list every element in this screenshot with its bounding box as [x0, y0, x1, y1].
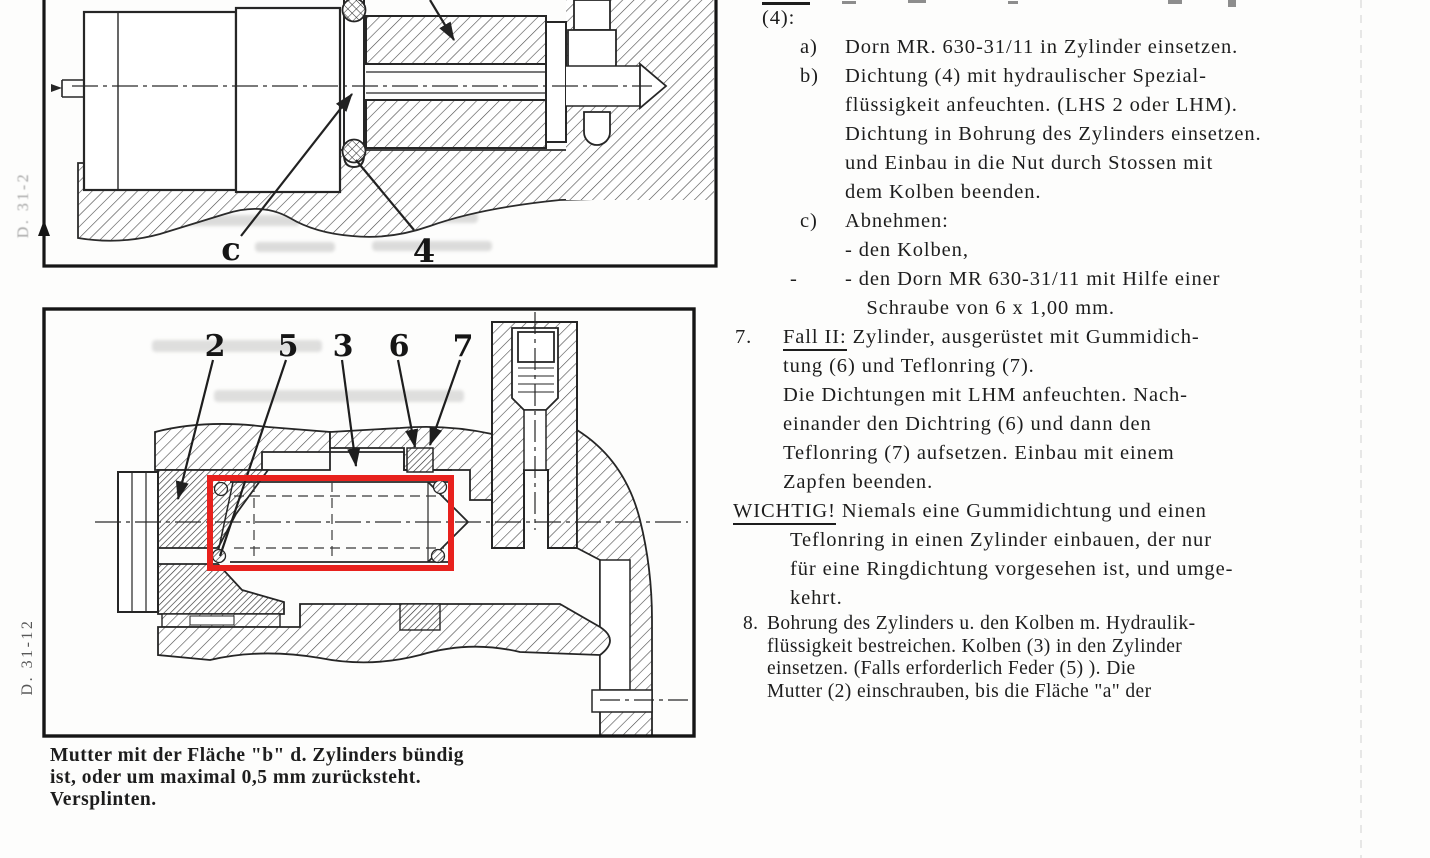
list-marker: - — [790, 265, 798, 294]
seal-ring-section — [407, 448, 433, 472]
callout-5: 5 — [278, 329, 299, 364]
list-marker: 7. — [735, 323, 752, 352]
text-line: - den Dorn MR 630-31/11 mit Hilfe einer — [845, 265, 1313, 294]
text-line: Die Dichtungen mit LHM anfeuchten. Nach- — [783, 381, 1313, 410]
instruction-column: (4):a)Dorn MR. 630-31/11 in Zylinder ein… — [733, 4, 1313, 703]
text-block: (4): — [733, 4, 1313, 33]
figure-top-diagram: c 4 — [38, 0, 720, 272]
text-line: kehrt. — [790, 584, 1313, 613]
figure-caption: Mutter mit der Fläche "b" d. Zylinders b… — [50, 745, 590, 811]
part-label-4: 4 — [413, 232, 435, 270]
text-block: b)Dichtung (4) mit hydraulischer Spezial… — [733, 62, 1313, 207]
list-marker: 8. — [743, 613, 758, 636]
callout-3: 3 — [333, 329, 354, 364]
text-block: 8.Bohrung des Zylinders u. den Kolben m.… — [733, 613, 1313, 703]
text-line: einsetzen. (Falls erforderlich Feder (5)… — [767, 658, 1313, 681]
instruction-blocks: (4):a)Dorn MR. 630-31/11 in Zylinder ein… — [733, 4, 1313, 703]
cutoff-line-fragment — [1008, 1, 1018, 4]
part-label-c: c — [221, 230, 240, 268]
list-marker: a) — [800, 33, 818, 62]
text-line: Zapfen beenden. — [783, 468, 1313, 497]
text-line: flüssigkeit anfeuchten. (LHS 2 oder LHM)… — [845, 91, 1313, 120]
cutoff-line-fragment — [908, 0, 926, 3]
text-line: für eine Ringdichtung vorgesehen ist, un… — [790, 555, 1313, 584]
text-line: Dichtung in Bohrung des Zylinders einset… — [845, 120, 1313, 149]
text-line: Bohrung des Zylinders u. den Kolben m. H… — [767, 613, 1313, 636]
text-line: tung (6) und Teflonring (7). — [783, 352, 1313, 381]
cutoff-line-underline — [762, 2, 810, 5]
text-line: flüssigkeit bestreichen. Kolben (3) in d… — [767, 636, 1313, 659]
clevis-end — [118, 472, 158, 612]
text-line: Dichtung (4) mit hydraulischer Spezial- — [845, 62, 1313, 91]
piston-section — [366, 16, 566, 148]
margin-ref-bottom: D. 31-12 — [19, 597, 37, 717]
text-line: Fall II: Zylinder, ausgerüstet mit Gummi… — [783, 323, 1313, 352]
text-line: einander den Dichtring (6) und dann den — [783, 410, 1313, 439]
manual-page: D. 31-2 D. 31-12 — [0, 0, 1430, 858]
caption-line: ist, oder um maximal 0,5 mm zurücksteht. — [50, 767, 590, 789]
text-line: WICHTIG! Niemals eine Gummidichtung und … — [790, 497, 1313, 526]
underlined-keyword: WICHTIG! — [733, 500, 836, 525]
text-line: Teflonring (7) aufsetzen. Einbau mit ein… — [783, 439, 1313, 468]
text-line: und Einbau in die Nut durch Stossen mit — [845, 149, 1313, 178]
text-block: -- den Dorn MR 630-31/11 mit Hilfe einer… — [733, 265, 1313, 323]
underlined-keyword: Fall II: — [783, 326, 847, 351]
scan-fold-line — [1360, 0, 1362, 858]
callout-6: 6 — [389, 329, 410, 364]
caption-line: Mutter mit der Fläche "b" d. Zylinders b… — [50, 745, 590, 767]
cutoff-line-fragment — [1228, 0, 1236, 7]
text-line: dem Kolben beenden. — [845, 178, 1313, 207]
cutoff-line-fragment — [842, 1, 856, 4]
figure-bottom-diagram: 2 5 3 6 7 — [38, 300, 704, 742]
frame-arrow — [38, 220, 50, 236]
housing-flange — [577, 430, 690, 736]
margin-ref-top: D. 31-2 — [15, 147, 33, 263]
caption-line: Versplinten. — [50, 789, 590, 811]
o-ring-seal — [343, 0, 366, 167]
text-block: 7.Fall II: Zylinder, ausgerüstet mit Gum… — [733, 323, 1313, 497]
text-line: Teflonring in einen Zylinder einbauen, d… — [790, 526, 1313, 555]
text-block: a)Dorn MR. 630-31/11 in Zylinder einsetz… — [733, 33, 1313, 62]
text-line: Schraube von 6 x 1,00 mm. — [845, 294, 1313, 323]
text-block: c)Abnehmen:- den Kolben, — [733, 207, 1313, 265]
callout-2: 2 — [205, 329, 226, 364]
text-block: WICHTIG! Niemals eine Gummidichtung und … — [733, 497, 1313, 613]
list-marker: b) — [800, 62, 819, 91]
text-line: Mutter (2) einschrauben, bis die Fläche … — [767, 681, 1313, 704]
list-marker: c) — [800, 207, 818, 236]
text-line: Abnehmen: — [845, 207, 1313, 236]
text-line: (4): — [762, 4, 1313, 33]
callout-7: 7 — [453, 329, 474, 364]
bleed-screw-column — [492, 312, 577, 548]
text-line: Dorn MR. 630-31/11 in Zylinder einsetzen… — [845, 33, 1313, 62]
text-line: - den Kolben, — [845, 236, 1313, 265]
cutoff-line-fragment — [1168, 0, 1182, 4]
